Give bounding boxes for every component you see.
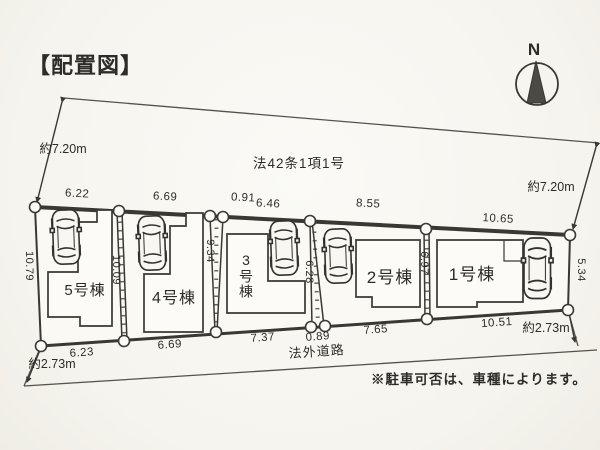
parking-note: ※駐車可否は、車種によります。: [371, 371, 587, 387]
car-icon: [136, 215, 169, 270]
boundary-marker: [114, 206, 125, 217]
dimension-label: 10.65: [482, 212, 514, 226]
dimension-label: 7.37: [250, 331, 275, 345]
car-icon: [322, 228, 355, 283]
dimension-label: 6.97: [418, 251, 430, 274]
boundary-marker: [30, 202, 41, 213]
boundary-marker: [205, 211, 216, 222]
dimension-label: 10.79: [23, 251, 35, 281]
road-top-label: 法42条1項1号: [253, 155, 345, 171]
dimension-label: 6.69: [153, 190, 178, 203]
lot-label-1: 1号棟: [449, 265, 495, 284]
dimension-label: 8.55: [356, 197, 381, 210]
dimension-label: 9.34: [204, 239, 216, 262]
site-plan-page: 5号棟 4号棟 3号棟 2号棟 1号棟 6.22 6.69 0.91 6.46 …: [0, 0, 600, 450]
dimension-label: 10.51: [481, 316, 513, 330]
boundary-marker: [563, 305, 574, 316]
boundary-marker: [36, 341, 47, 352]
road-bottom-label: 法外道路: [288, 342, 345, 361]
boundary-marker: [119, 336, 130, 347]
page-title: 【配置図】: [28, 53, 143, 78]
bottom-right-depth-label: 約2.73m: [522, 320, 569, 335]
boundary-marker: [218, 212, 229, 223]
car-icon: [50, 209, 83, 264]
boundary-marker: [421, 224, 432, 235]
right-depth-measure: [573, 147, 596, 229]
north-compass: N: [516, 40, 558, 105]
right-depth-label: 約7.20m: [527, 179, 574, 194]
lot-label-2: 2号棟: [367, 268, 413, 287]
dimension-label: 6.69: [157, 338, 182, 352]
dimension-label: 0.91: [231, 191, 256, 204]
boundary-marker: [211, 327, 222, 338]
boundary-marker: [422, 314, 433, 325]
dimension-label: 6.22: [65, 187, 90, 200]
north-needle-icon: [527, 61, 546, 103]
dimension-label: 6.28: [303, 260, 315, 283]
boundary-marker: [305, 216, 316, 227]
dimension-label: 5.34: [575, 258, 587, 281]
left-depth-label: 約7.20m: [39, 141, 86, 156]
dimension-label: 6.46: [256, 197, 281, 210]
dimension-label: 7.65: [363, 323, 388, 337]
car-icon: [268, 220, 301, 275]
north-label: N: [528, 40, 540, 59]
lot-label-5: 5号棟: [64, 282, 105, 299]
bottom-right-depth-measure: [569, 313, 575, 342]
dimension-label: 10.09: [110, 255, 122, 285]
lot-label-3: 3号棟: [238, 252, 254, 299]
outer-boundary-top: [64, 98, 599, 143]
boundary-marker: [565, 230, 576, 241]
lot-label-4: 4号棟: [152, 289, 196, 307]
bottom-left-depth-label: 約2.73m: [28, 356, 75, 371]
car-icon: [521, 238, 553, 298]
site-plan-drawing: 5号棟 4号棟 3号棟 2号棟 1号棟 6.22 6.69 0.91 6.46 …: [0, 0, 600, 450]
dimension-label: 0.89: [305, 330, 330, 344]
